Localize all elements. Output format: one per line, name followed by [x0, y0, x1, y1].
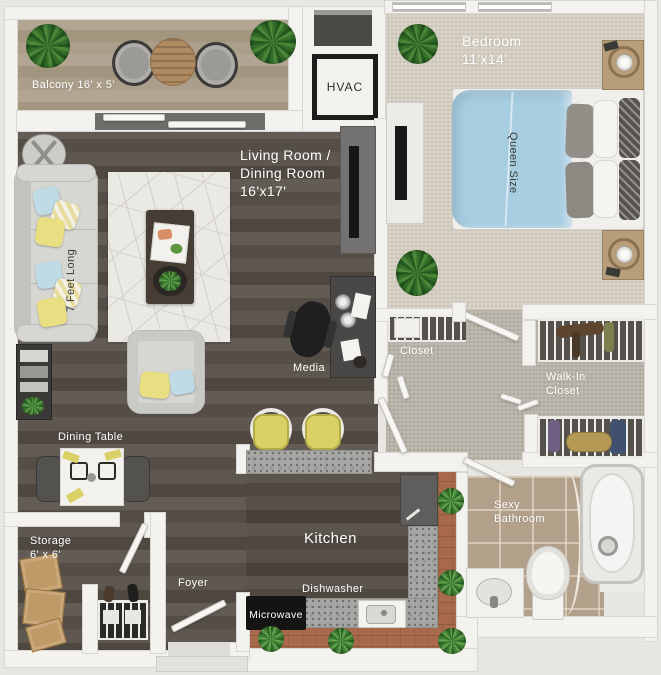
storage-basket [394, 318, 420, 338]
plant-icon [438, 488, 464, 514]
living-label-dims: 16'x17' [240, 182, 331, 200]
place-setting [98, 462, 116, 480]
serving-tray [150, 222, 190, 264]
bedroom-label-name: Bedroom [462, 32, 522, 50]
bar-stool [253, 414, 289, 450]
balcony-sliding-door-panel [103, 114, 165, 121]
wall-right [644, 0, 658, 642]
plant-icon [250, 20, 296, 64]
walkin-label-line2: Closet [546, 384, 610, 398]
hanging-clothes [556, 322, 605, 339]
bookshelf [16, 344, 52, 420]
microwave-label: Microwave [246, 608, 306, 622]
bed-pillow [565, 162, 595, 219]
bed-pillow [619, 98, 640, 158]
wall-hall-kitchen [374, 452, 468, 472]
storage-label: Storage 6' x 6' [30, 534, 71, 562]
storage-label-name: Storage [30, 534, 71, 548]
shoe-mat [125, 610, 141, 624]
napkin [104, 449, 122, 461]
bedroom-window [478, 2, 552, 12]
lamp-bulb [616, 246, 633, 263]
bathroom-label-line1: Sexy [494, 498, 545, 512]
walk-in-closet-label: Walk-In Closet [546, 370, 610, 398]
dishwasher-label: Dishwasher [302, 582, 363, 596]
shoe-rack [98, 600, 148, 640]
plant-icon [328, 628, 354, 654]
wall-storage-right [150, 512, 166, 654]
tub-faucet [598, 536, 618, 556]
throw-pillow [34, 216, 66, 248]
sink-faucet [381, 610, 387, 616]
storage-label-dims: 6' x 6' [30, 548, 71, 562]
throw-pillow [139, 371, 172, 400]
bedroom-label-dims: 11'x14' [462, 50, 522, 68]
bed-pillow [565, 104, 595, 159]
plant-icon [22, 397, 44, 415]
bathroom-label-line2: Bathroom [494, 512, 545, 526]
bed-pillow [593, 100, 618, 158]
fridge-handle [406, 508, 420, 520]
bed-pillow [619, 160, 640, 220]
living-label-line1: Living Room / [240, 146, 331, 164]
floor-plan: Balcony 16' x 5' HVAC Bedroom 11'x14' Qu… [0, 0, 661, 675]
wall-storage-top [4, 512, 120, 527]
coffee-table [146, 210, 194, 304]
plant-icon [26, 24, 70, 68]
bar-stool [305, 414, 341, 450]
walkin-shelf-top [538, 318, 644, 362]
living-label-line2: Dining Room [240, 164, 331, 182]
plant-icon [396, 250, 438, 296]
refrigerator [400, 474, 438, 526]
plant-icon [398, 24, 438, 64]
walkin-shelf-bottom [538, 416, 644, 458]
shelf-books [20, 366, 48, 378]
toilet-bowl [526, 546, 570, 600]
plant-icon [258, 626, 284, 652]
duffel-bag [566, 432, 612, 452]
dining-table [60, 448, 124, 506]
plant-icon [438, 628, 466, 654]
napkin [66, 488, 84, 504]
hanging-clothes [548, 420, 560, 452]
hvac-window [314, 10, 372, 46]
tv [349, 146, 359, 238]
sofa-armrest [16, 164, 96, 182]
food-item [157, 229, 172, 240]
hanging-clothes [604, 322, 614, 352]
desk-bowl [353, 356, 367, 368]
bathtub-basin [589, 473, 635, 573]
napkin [62, 451, 80, 464]
kitchen-peninsula-counter [246, 450, 372, 474]
hanging-clothes [572, 332, 580, 358]
armchair [127, 330, 205, 414]
living-room-label: Living Room / Dining Room 16'x17' [240, 146, 331, 200]
dresser-tv [395, 126, 407, 200]
foyer-label: Foyer [178, 576, 208, 590]
bathroom-label: Sexy Bathroom [494, 498, 545, 526]
bed-pillow [593, 160, 618, 218]
wall-walkin-left-upper [522, 320, 536, 366]
wall-balcony-top [4, 6, 304, 20]
closet-label: Closet [400, 344, 434, 358]
balcony-chair [194, 42, 238, 88]
place-setting [70, 462, 88, 480]
sofa-length-label: 7 Feet Long [64, 222, 78, 312]
sofa-back [15, 171, 31, 337]
shelf-books [20, 350, 48, 362]
balcony-sliding-door-panel [168, 121, 246, 128]
bedroom-label: Bedroom 11'x14' [462, 32, 522, 68]
sofa-armrest [16, 324, 96, 342]
door-jamb [452, 302, 466, 322]
dining-table-label: Dining Table [58, 430, 123, 444]
kitchen-counter-right [408, 526, 438, 602]
food-item [170, 243, 183, 254]
hvac-label: HVAC [312, 80, 378, 94]
centerpiece [87, 473, 96, 482]
plant-icon [438, 570, 464, 596]
entry-stoop [156, 656, 248, 672]
dining-chair [122, 456, 150, 502]
walkin-label-line1: Walk-In [546, 370, 610, 384]
bedroom-window [392, 2, 466, 12]
kitchen-sink [358, 600, 406, 628]
plant-icon [159, 271, 181, 291]
kitchen-label: Kitchen [304, 532, 357, 546]
balcony-table [150, 38, 196, 86]
wall-storage-niche [82, 584, 98, 654]
queen-size-label: Queen Size [506, 132, 520, 222]
vanity-faucet [490, 596, 498, 608]
media-label: Media [293, 361, 325, 375]
hanging-clothes [610, 420, 626, 454]
lamp-bulb [616, 54, 633, 71]
shelf-books [20, 382, 48, 392]
balcony-label: Balcony 16' x 5' [32, 78, 115, 92]
throw-pillow [168, 368, 196, 396]
shoe-mat [103, 610, 119, 624]
